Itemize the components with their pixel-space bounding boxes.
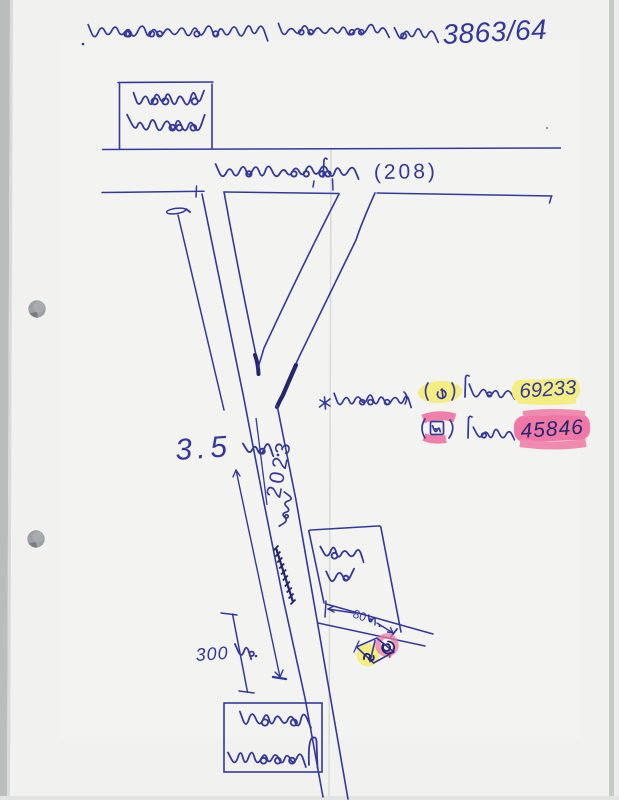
svg-text:(208): (208): [374, 160, 438, 184]
svg-text:45846: 45846: [520, 416, 585, 443]
svg-text:3863/64: 3863/64: [442, 14, 548, 50]
svg-text:69233: 69233: [519, 376, 578, 403]
svg-text:300: 300: [195, 643, 229, 665]
svg-text:3.5: 3.5: [174, 430, 233, 467]
